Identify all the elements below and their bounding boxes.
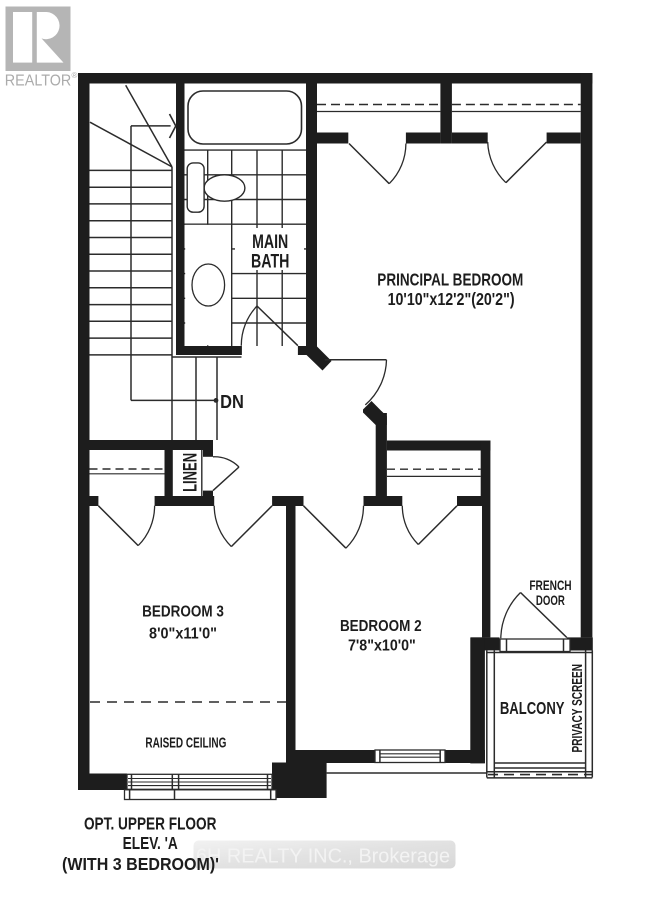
svg-text:FRENCH: FRENCH [529, 578, 571, 593]
svg-text:®: ® [72, 71, 78, 80]
svg-text:BEDROOM 3: BEDROOM 3 [142, 603, 224, 620]
svg-text:6H REALTY INC., Brokerage: 6H REALTY INC., Brokerage [196, 845, 450, 868]
svg-text:RAISED CEILING: RAISED CEILING [145, 736, 226, 752]
svg-text:OPT. UPPER FLOOR: OPT. UPPER FLOOR [84, 813, 217, 833]
svg-text:BALCONY: BALCONY [500, 698, 565, 718]
svg-text:DOOR: DOOR [536, 593, 565, 608]
svg-text:PRINCIPAL BEDROOM: PRINCIPAL BEDROOM [377, 269, 523, 289]
svg-text:BEDROOM 2: BEDROOM 2 [340, 618, 422, 635]
svg-text:DN: DN [220, 391, 244, 412]
svg-text:PRIVACY SCREEN: PRIVACY SCREEN [570, 664, 586, 753]
svg-text:10'10"x12'2"(20'2"): 10'10"x12'2"(20'2") [388, 289, 515, 309]
svg-text:REALTOR: REALTOR [5, 73, 72, 90]
svg-text:7'8"x10'0": 7'8"x10'0" [348, 638, 416, 655]
svg-text:(WITH 3 BEDROOM)': (WITH 3 BEDROOM)' [62, 854, 219, 874]
svg-text:ELEV. 'A: ELEV. 'A [123, 833, 178, 853]
svg-text:8'0"x11'0": 8'0"x11'0" [149, 625, 217, 642]
svg-text:BATH: BATH [251, 251, 289, 273]
svg-text:LINEN: LINEN [181, 453, 202, 492]
